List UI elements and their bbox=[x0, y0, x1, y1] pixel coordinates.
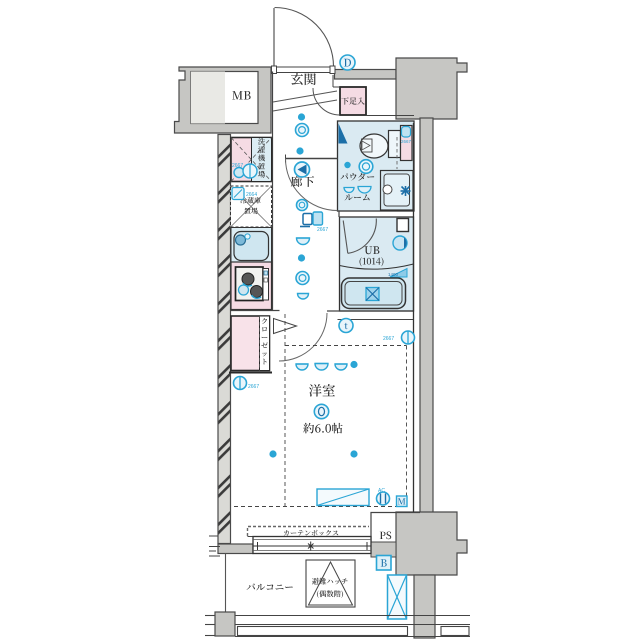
svg-text:2667: 2667 bbox=[248, 384, 259, 390]
svg-text:2667: 2667 bbox=[383, 336, 394, 342]
svg-text:2664: 2664 bbox=[246, 192, 257, 198]
svg-text:2667: 2667 bbox=[317, 227, 328, 233]
svg-text:1400: 1400 bbox=[388, 272, 399, 277]
svg-text:2667: 2667 bbox=[232, 163, 243, 169]
svg-text:2667: 2667 bbox=[401, 139, 412, 144]
